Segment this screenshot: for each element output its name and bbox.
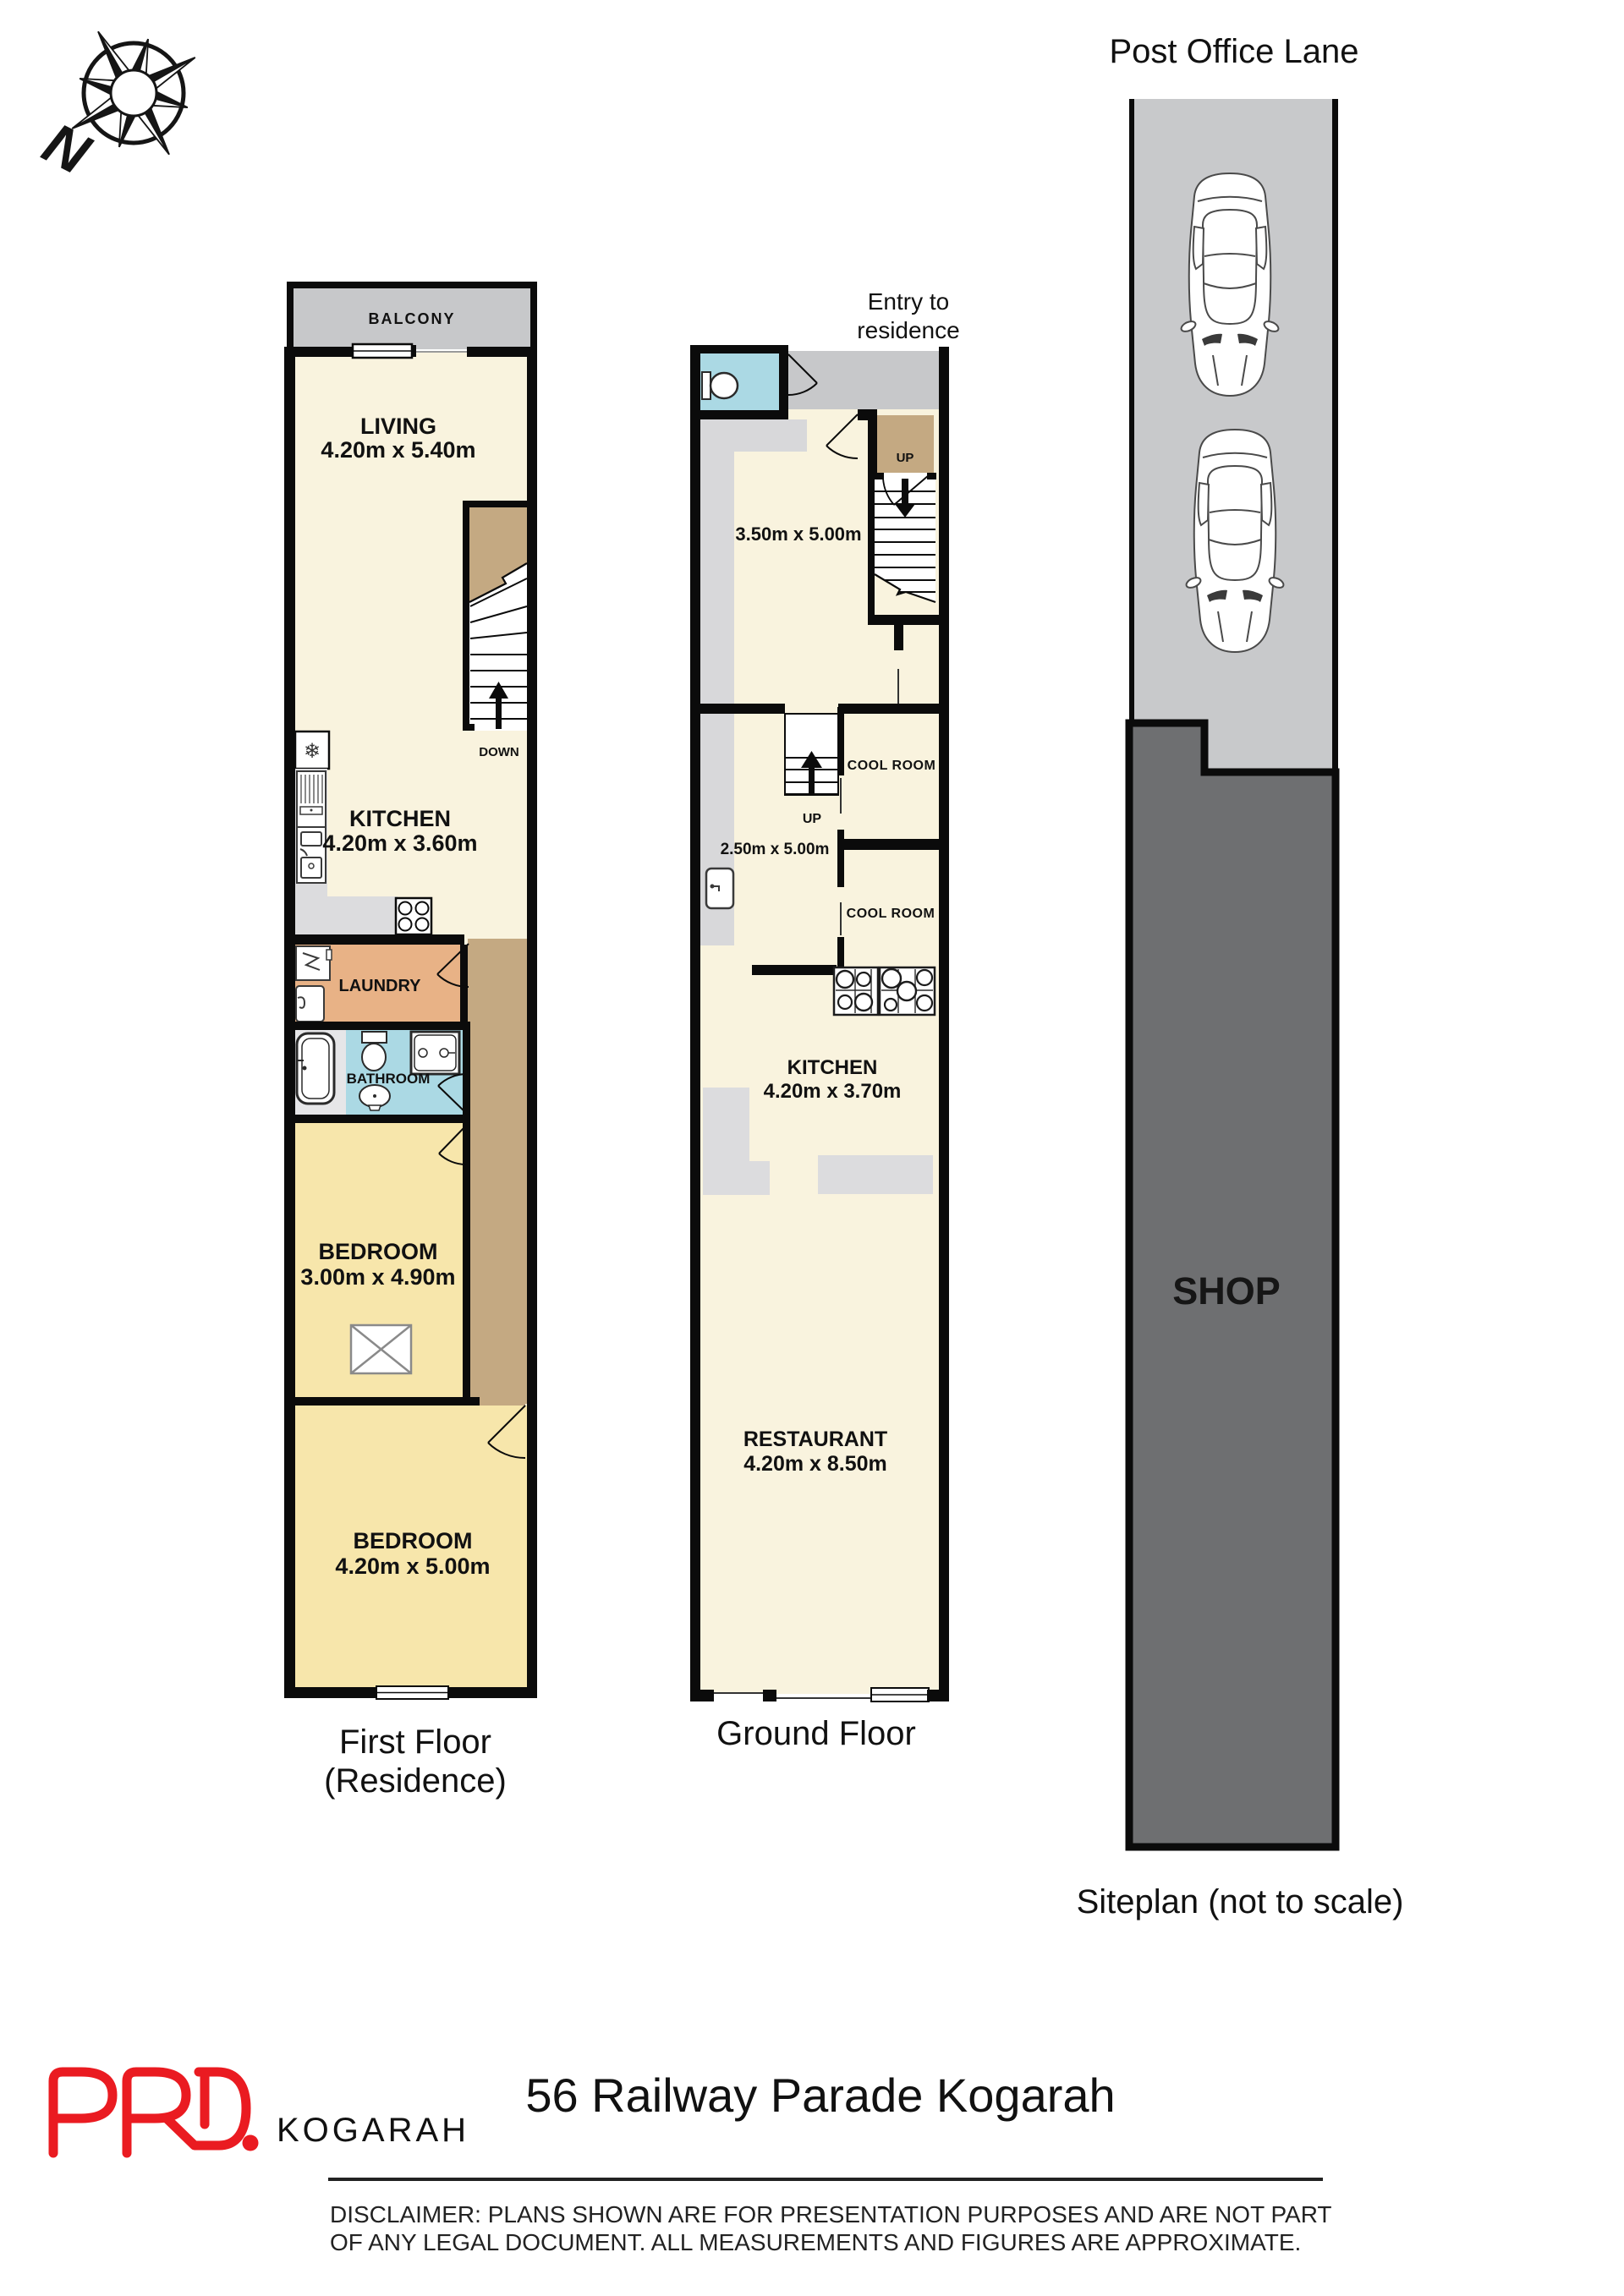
svg-text:COOL ROOM: COOL ROOM bbox=[847, 907, 935, 921]
svg-text:4.20m x 3.60m: 4.20m x 3.60m bbox=[322, 830, 477, 856]
svg-text:Entry to: Entry to bbox=[868, 288, 949, 315]
svg-text:Post Office Lane: Post Office Lane bbox=[1110, 33, 1359, 70]
svg-text:BALCONY: BALCONY bbox=[369, 310, 456, 327]
svg-text:BEDROOM: BEDROOM bbox=[319, 1239, 438, 1264]
svg-text:COOL ROOM: COOL ROOM bbox=[848, 759, 936, 773]
svg-text:UP: UP bbox=[897, 451, 914, 465]
svg-text:LIVING: LIVING bbox=[360, 414, 436, 439]
svg-text:4.20m x 5.40m: 4.20m x 5.40m bbox=[321, 437, 475, 463]
svg-text:4.20m x 3.70m: 4.20m x 3.70m bbox=[764, 1080, 902, 1103]
svg-text:56 Railway Parade Kogarah: 56 Railway Parade Kogarah bbox=[525, 2069, 1115, 2122]
svg-text:4.20m x 5.00m: 4.20m x 5.00m bbox=[335, 1553, 490, 1579]
svg-text:LAUNDRY: LAUNDRY bbox=[338, 977, 421, 995]
svg-text:2.50m x 5.00m: 2.50m x 5.00m bbox=[721, 841, 830, 858]
svg-text:First Floor: First Floor bbox=[339, 1723, 491, 1761]
svg-text:KITCHEN: KITCHEN bbox=[349, 806, 451, 831]
svg-text:OF ANY LEGAL DOCUMENT. ALL MEA: OF ANY LEGAL DOCUMENT. ALL MEASUREMENTS … bbox=[330, 2229, 1301, 2255]
svg-text:DISCLAIMER: PLANS SHOWN ARE F: DISCLAIMER: PLANS SHOWN ARE FOR PRESENTA… bbox=[330, 2201, 1332, 2228]
svg-text:Siteplan (not to scale): Siteplan (not to scale) bbox=[1077, 1883, 1404, 1921]
svg-text:KITCHEN: KITCHEN bbox=[787, 1056, 878, 1079]
svg-text:DOWN: DOWN bbox=[479, 745, 519, 759]
svg-text:BATHROOM: BATHROOM bbox=[347, 1071, 431, 1087]
svg-text:4.20m x 8.50m: 4.20m x 8.50m bbox=[743, 1452, 887, 1476]
svg-text:UP: UP bbox=[803, 812, 822, 826]
svg-text:(Residence): (Residence) bbox=[324, 1762, 507, 1800]
svg-text:Ground Floor: Ground Floor bbox=[716, 1715, 916, 1752]
svg-text:KOGARAH: KOGARAH bbox=[277, 2112, 469, 2149]
svg-text:3.00m x 4.90m: 3.00m x 4.90m bbox=[300, 1264, 455, 1290]
svg-text:residence: residence bbox=[857, 317, 959, 343]
svg-text:3.50m x 5.00m: 3.50m x 5.00m bbox=[735, 523, 861, 545]
svg-text:BEDROOM: BEDROOM bbox=[354, 1528, 473, 1553]
svg-text:SHOP: SHOP bbox=[1172, 1269, 1281, 1312]
svg-text:RESTAURANT: RESTAURANT bbox=[743, 1427, 887, 1451]
svg-text:❄: ❄ bbox=[304, 740, 321, 763]
